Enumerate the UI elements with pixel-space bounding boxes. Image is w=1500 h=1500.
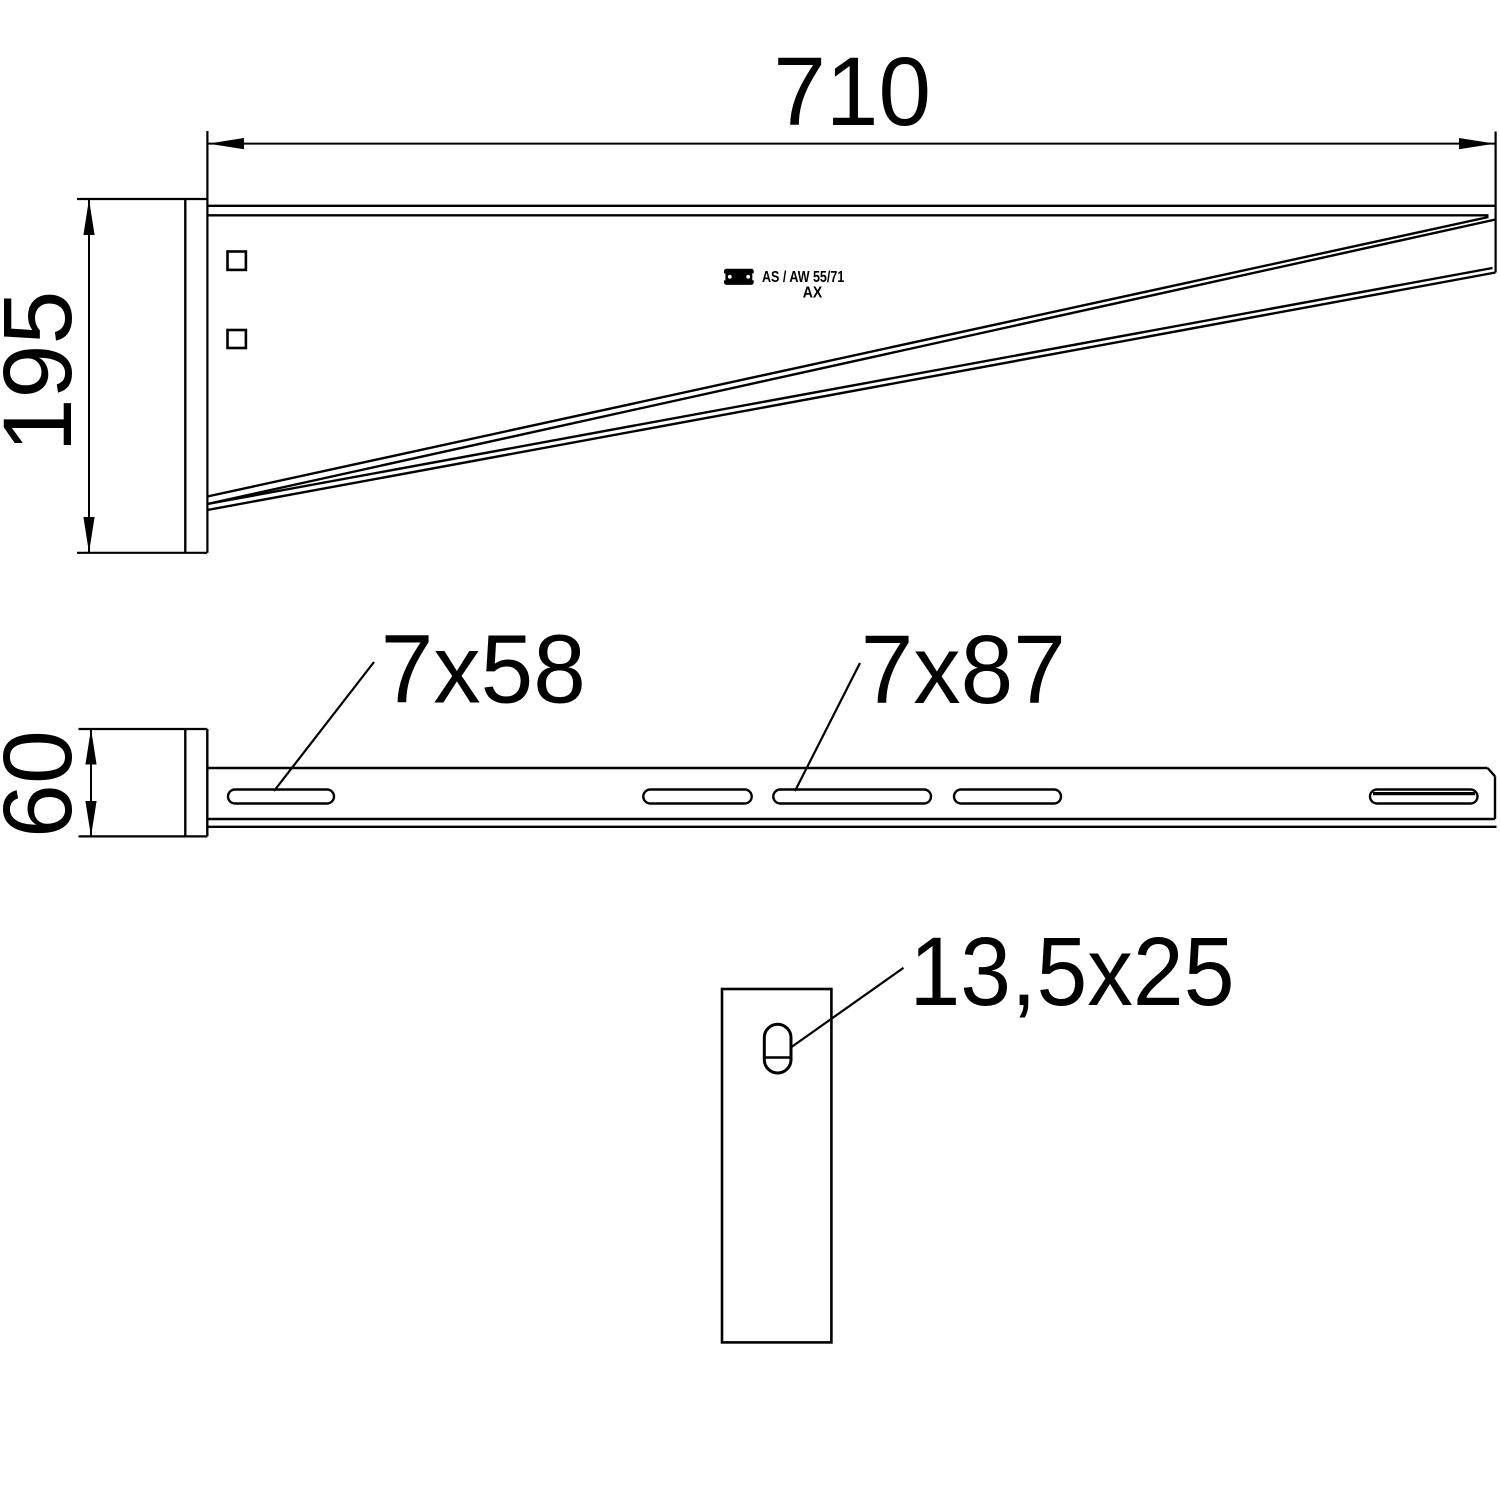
svg-text:7x87: 7x87: [861, 615, 1066, 724]
svg-text:60: 60: [0, 730, 92, 838]
svg-text:13,5x25: 13,5x25: [910, 917, 1235, 1026]
svg-text:7x58: 7x58: [381, 615, 586, 724]
svg-text:195: 195: [0, 291, 92, 453]
svg-text:AX: AX: [803, 285, 823, 302]
svg-text:710: 710: [773, 37, 931, 146]
